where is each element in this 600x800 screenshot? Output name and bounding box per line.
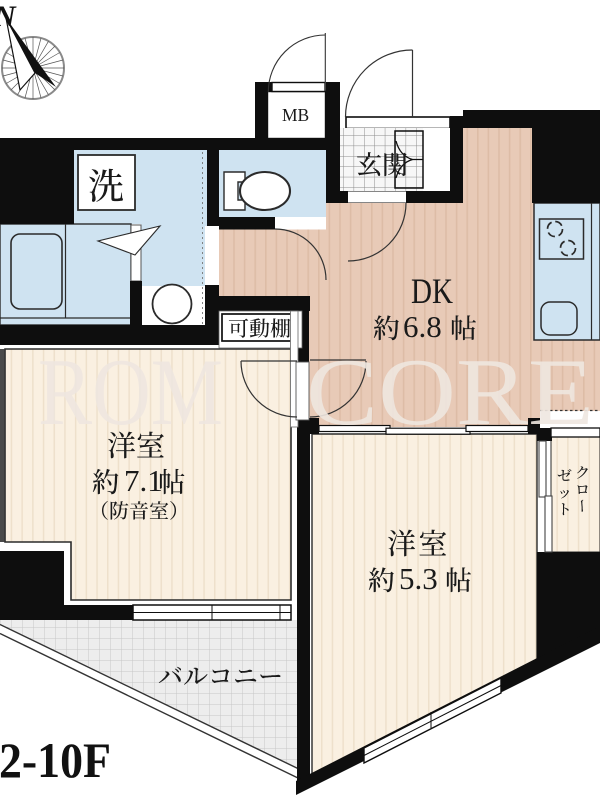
svg-text:N: N [0,0,17,33]
svg-text:ROM: ROM [38,339,223,445]
svg-text:CORE: CORE [306,339,594,445]
svg-text:DK: DK [411,271,453,311]
svg-text:MB: MB [282,105,309,125]
svg-text:5.3: 5.3 [399,561,438,596]
svg-text:6.8: 6.8 [403,309,442,344]
svg-text:7.1: 7.1 [124,463,163,498]
svg-text:2-10F: 2-10F [0,732,111,788]
